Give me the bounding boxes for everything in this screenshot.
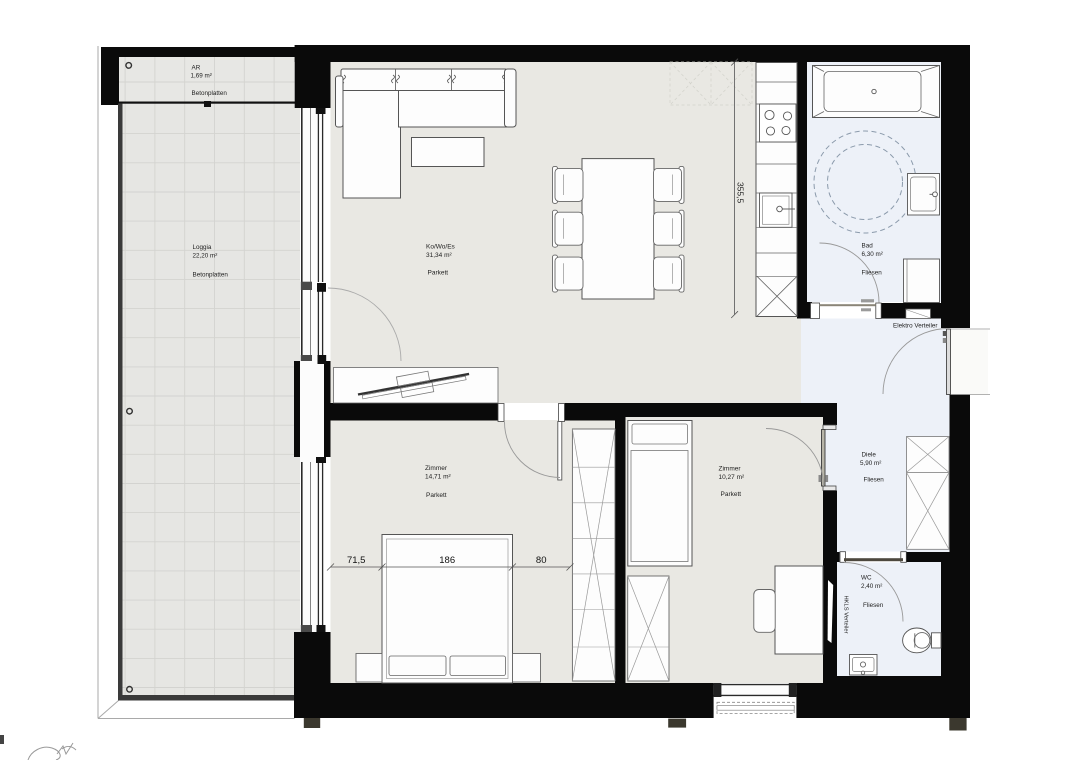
svg-text:31,34 m²: 31,34 m² [426, 252, 452, 259]
svg-text:71,5: 71,5 [347, 555, 366, 566]
svg-text:Betonplatten: Betonplatten [192, 90, 228, 97]
svg-text:14,71 m²: 14,71 m² [425, 474, 451, 481]
svg-text:Loggia: Loggia [193, 244, 212, 251]
svg-text:186: 186 [439, 555, 455, 566]
svg-text:Diele: Diele [862, 452, 877, 459]
svg-text:10,27 m²: 10,27 m² [719, 474, 745, 481]
svg-text:Zimmer: Zimmer [425, 465, 448, 472]
svg-text:WC: WC [861, 575, 872, 582]
svg-text:Zimmer: Zimmer [719, 466, 742, 473]
svg-text:Betonplatten: Betonplatten [193, 272, 229, 279]
svg-text:HKLS Verteiler: HKLS Verteiler [843, 595, 849, 633]
svg-text:Fliesen: Fliesen [863, 602, 884, 609]
svg-text:2,40 m²: 2,40 m² [861, 583, 882, 590]
svg-text:22,20 m²: 22,20 m² [193, 253, 218, 260]
svg-text:Parkett: Parkett [428, 270, 449, 277]
svg-text:Elektro Verteiler: Elektro Verteiler [893, 323, 937, 330]
svg-text:AR: AR [192, 65, 201, 72]
svg-text:Fliesen: Fliesen [864, 477, 885, 484]
svg-text:1,69 m²: 1,69 m² [191, 73, 212, 80]
svg-text:355,5: 355,5 [736, 182, 746, 204]
svg-text:6,30 m²: 6,30 m² [862, 251, 883, 258]
svg-text:Parkett: Parkett [426, 492, 447, 499]
svg-text:Bad: Bad [862, 243, 874, 250]
svg-text:Fliesen: Fliesen [862, 270, 883, 277]
svg-text:Ko/Wo/Es: Ko/Wo/Es [426, 244, 456, 251]
svg-text:5,90 m²: 5,90 m² [860, 460, 881, 467]
svg-text:80: 80 [536, 555, 547, 566]
svg-text:Parkett: Parkett [721, 491, 742, 498]
